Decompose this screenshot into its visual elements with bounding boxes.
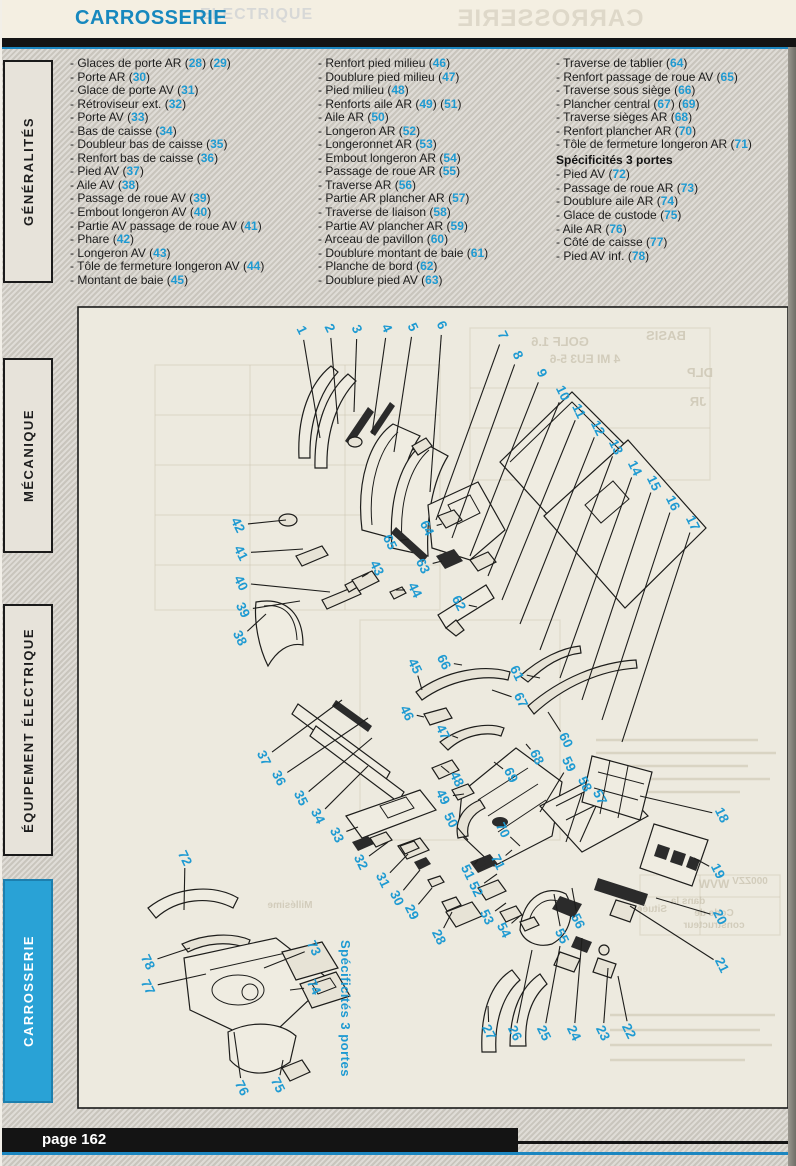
ghost-bleedthrough-text: DLP [687, 365, 713, 380]
ghost-bleedthrough-text: dans la [670, 896, 705, 907]
scan-edge-right [788, 47, 796, 1166]
page-number-label: page 162 [42, 1131, 106, 1148]
diagram-note-layer: Spécificités 3 portes [338, 940, 353, 1077]
exploded-parts-diagram: GOLF 1.6BASIS4 MI EU3 5-6DLPJRWVW000ZZVC… [0, 0, 796, 1166]
ghost-bleedthrough-text: GOLF 1.6 [531, 334, 589, 349]
ghost-bleedthrough-text: BASIS [646, 328, 686, 343]
scanned-manual-page: ELECTRIQUE CARROSSERIE CARROSSERIE GÉNÉR… [0, 0, 796, 1166]
ghost-bleedthrough-text: 000ZZV [732, 876, 768, 887]
ghost-bleedthrough-text: Millésime [267, 900, 312, 911]
scan-edge-left [0, 0, 2, 1166]
footer-blue-line [0, 1152, 796, 1155]
ghost-bleedthrough-text: 4 MI EU3 5-6 [549, 352, 620, 366]
diagram-note-3-portes: Spécificités 3 portes [338, 940, 353, 1077]
ghost-bleedthrough-text: JR [689, 394, 706, 409]
footer-thin-line [500, 1141, 796, 1144]
diagram-border-box [78, 307, 788, 1108]
